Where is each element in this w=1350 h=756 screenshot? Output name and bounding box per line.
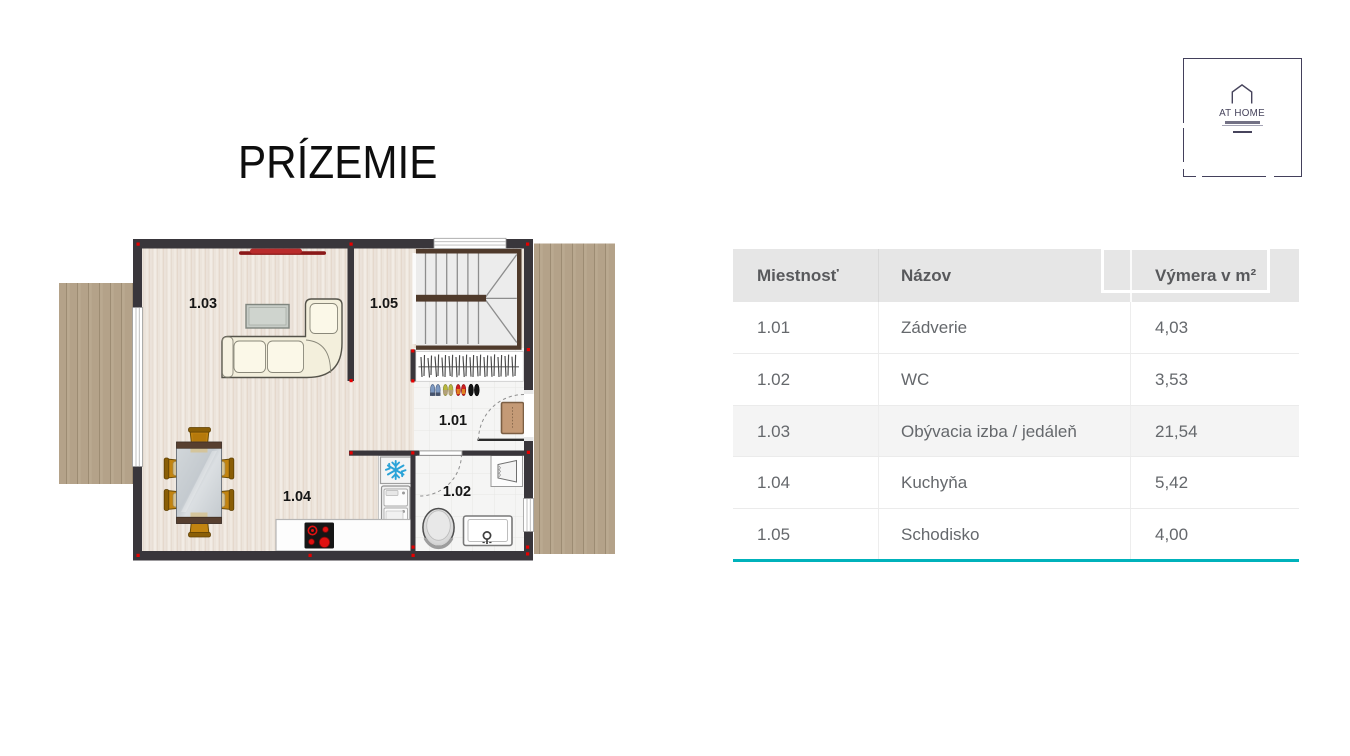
svg-text:1.02: 1.02 [443,484,471,500]
svg-text:1.03: 1.03 [189,296,217,312]
svg-text:1.01: 1.01 [439,413,467,429]
svg-text:1.04: 1.04 [283,489,311,505]
svg-text:1.05: 1.05 [370,296,398,312]
